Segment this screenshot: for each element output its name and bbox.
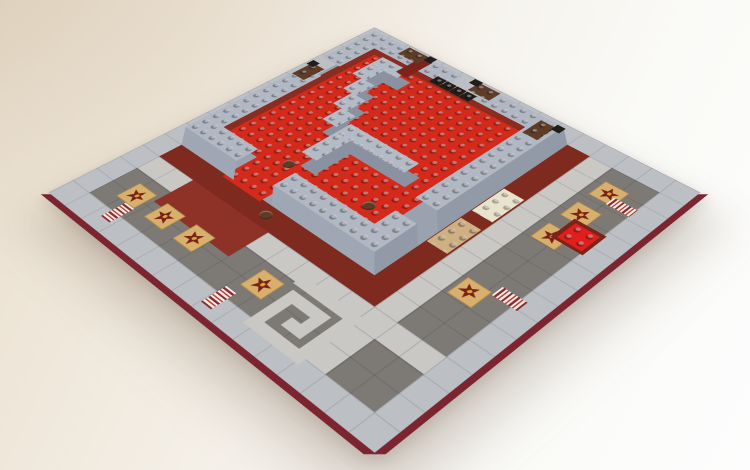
star-print-icon xyxy=(122,186,150,204)
star-center-dot xyxy=(161,214,168,218)
star-center-dot xyxy=(578,212,585,216)
lego-baseplate xyxy=(48,27,700,452)
desk-background xyxy=(0,0,750,470)
star-center-dot xyxy=(191,236,197,240)
star-center-dot xyxy=(606,191,612,195)
star-center-dot xyxy=(133,193,139,197)
star-center-dot xyxy=(259,281,266,286)
photo-scene xyxy=(0,0,750,470)
star-print-icon xyxy=(180,229,206,247)
star-print-icon xyxy=(454,282,484,302)
star-center-dot xyxy=(466,289,472,293)
